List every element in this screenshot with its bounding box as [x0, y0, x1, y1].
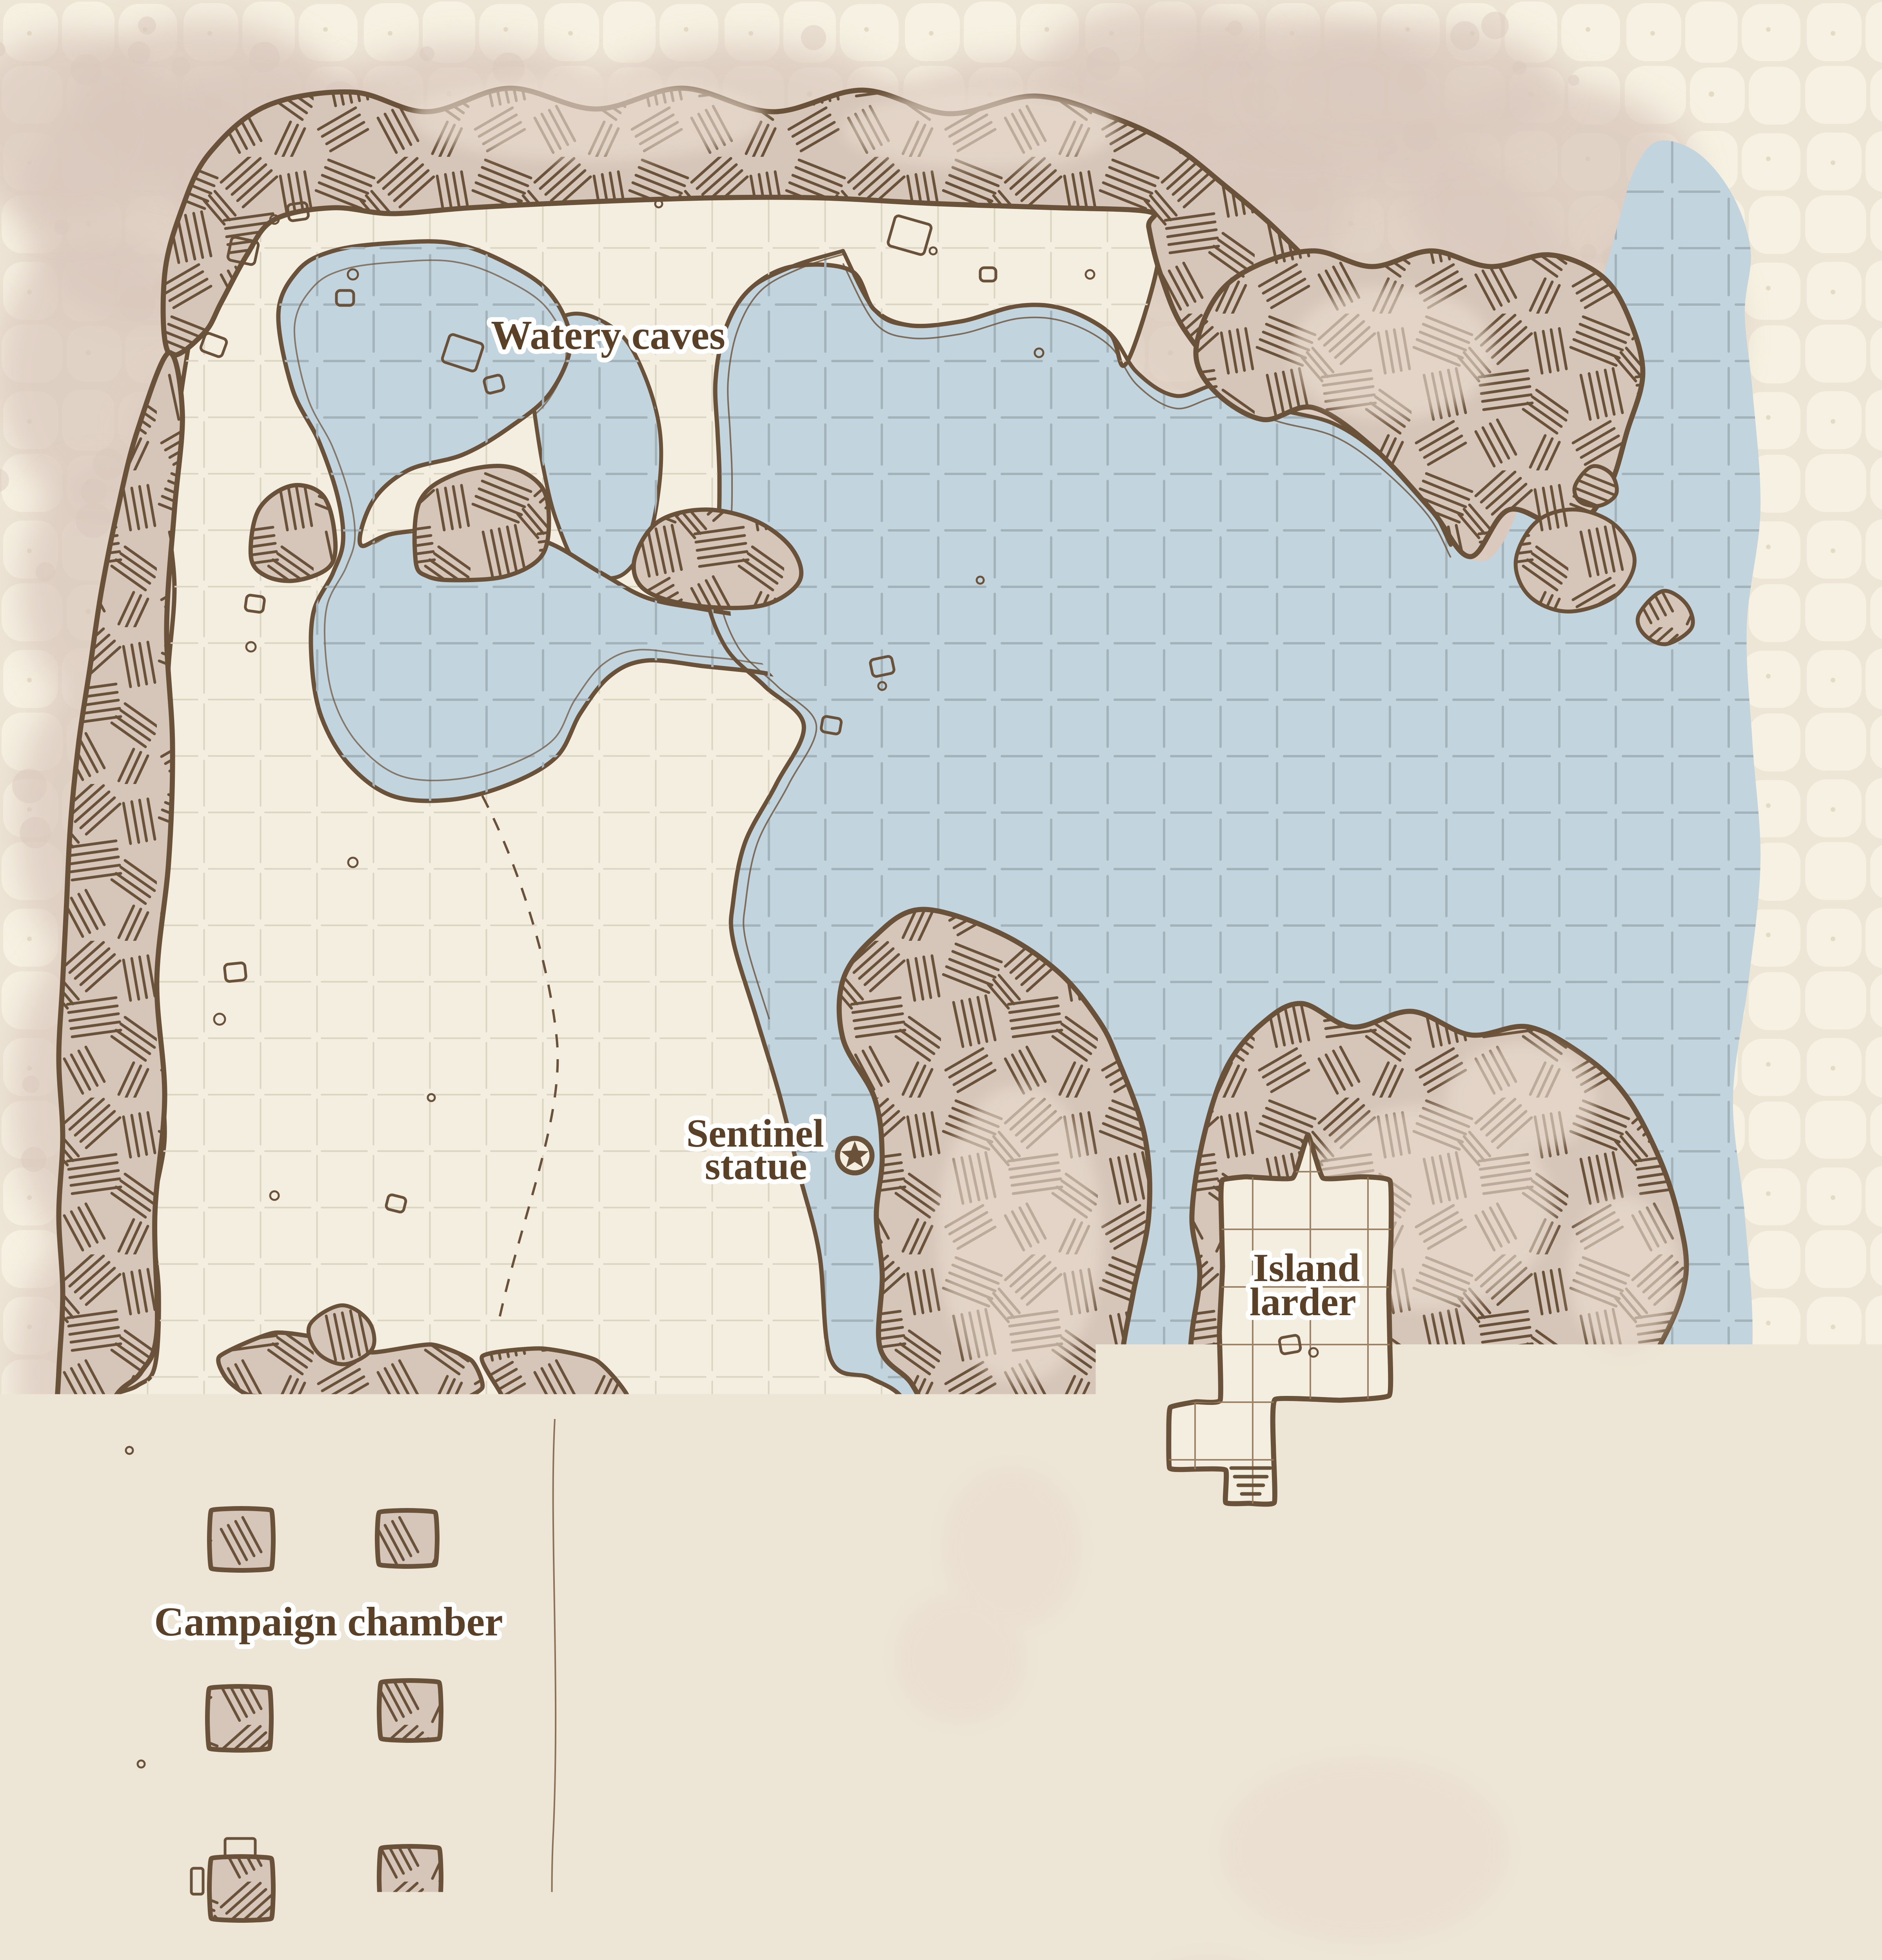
svg-text:Watery caves: Watery caves — [491, 312, 725, 358]
svg-text:statue: statue — [705, 1144, 807, 1188]
svg-text:larder: larder — [1250, 1280, 1356, 1324]
svg-text:Campaign chamber: Campaign chamber — [154, 1599, 503, 1644]
